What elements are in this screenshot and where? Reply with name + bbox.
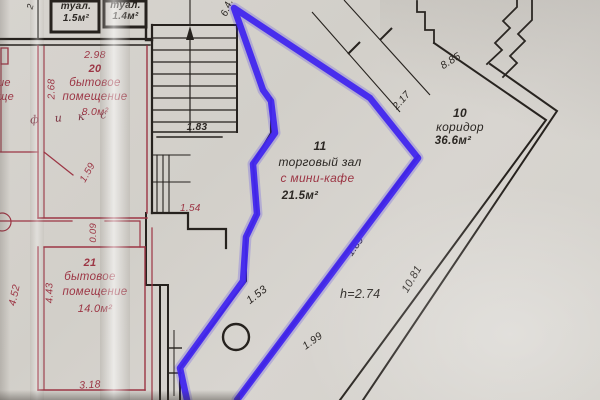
dim-885: 8.85: [439, 51, 463, 71]
dim-318: 3.18: [60, 378, 120, 392]
room21-number: 21: [50, 258, 130, 269]
dim-217: 2.17: [392, 90, 413, 112]
dim-154: 1.54: [180, 204, 201, 214]
room10-area: 36.6м²: [418, 136, 488, 148]
dim-64: 6.4.: [220, 0, 236, 18]
room10-number: 10: [430, 107, 490, 119]
room10-name: коридор: [420, 121, 500, 133]
room21-area: 14.0м²: [50, 304, 140, 315]
room20-name-2: помещение: [45, 92, 145, 104]
dim-199: 1.99: [301, 331, 325, 352]
wc-right-name: туал.: [104, 1, 147, 11]
room11-number: 11: [255, 140, 385, 152]
room20-number: 20: [60, 64, 130, 75]
dim-153: 1.53: [245, 284, 270, 307]
room11-subtitle: с мини-кафе: [250, 172, 385, 184]
edge-text-fragment-1: ие: [0, 78, 11, 89]
wc-left-name: туал.: [52, 2, 100, 12]
room11-area: 21.5м²: [245, 191, 355, 203]
room11-name: торговый зал: [250, 156, 390, 168]
wc-left-area: 1.5м²: [52, 14, 100, 24]
floor-plan-photo: туал. 1.5м² туал. 1.4м² 2.98 20 бытовое …: [0, 0, 600, 400]
dim-183: 1.83: [172, 123, 222, 133]
room21-name-2: помещение: [40, 287, 150, 299]
dim-189: 1.89: [346, 236, 366, 259]
handwritten-note: фикс: [30, 105, 160, 125]
dim-298: 2.98: [60, 50, 130, 61]
label-layer: туал. 1.5м² туал. 1.4м² 2.98 20 бытовое …: [0, 0, 600, 400]
edge-text-fragment-2: ще: [0, 92, 14, 103]
dim-2-cut: 2: [26, 3, 36, 10]
dim-443: 4.43: [45, 283, 55, 304]
room20-name-1: бытовое: [45, 78, 145, 90]
dim-h274: h=2.74: [340, 288, 380, 301]
dim-159: 1.59: [79, 162, 98, 185]
dim-268: 2.68: [47, 79, 57, 100]
dim-009: 0.09: [89, 223, 99, 243]
dim-452: 4.52: [7, 284, 22, 307]
dim-1081: 10.81: [400, 264, 424, 295]
wc-right-area: 1.4м²: [104, 12, 147, 22]
